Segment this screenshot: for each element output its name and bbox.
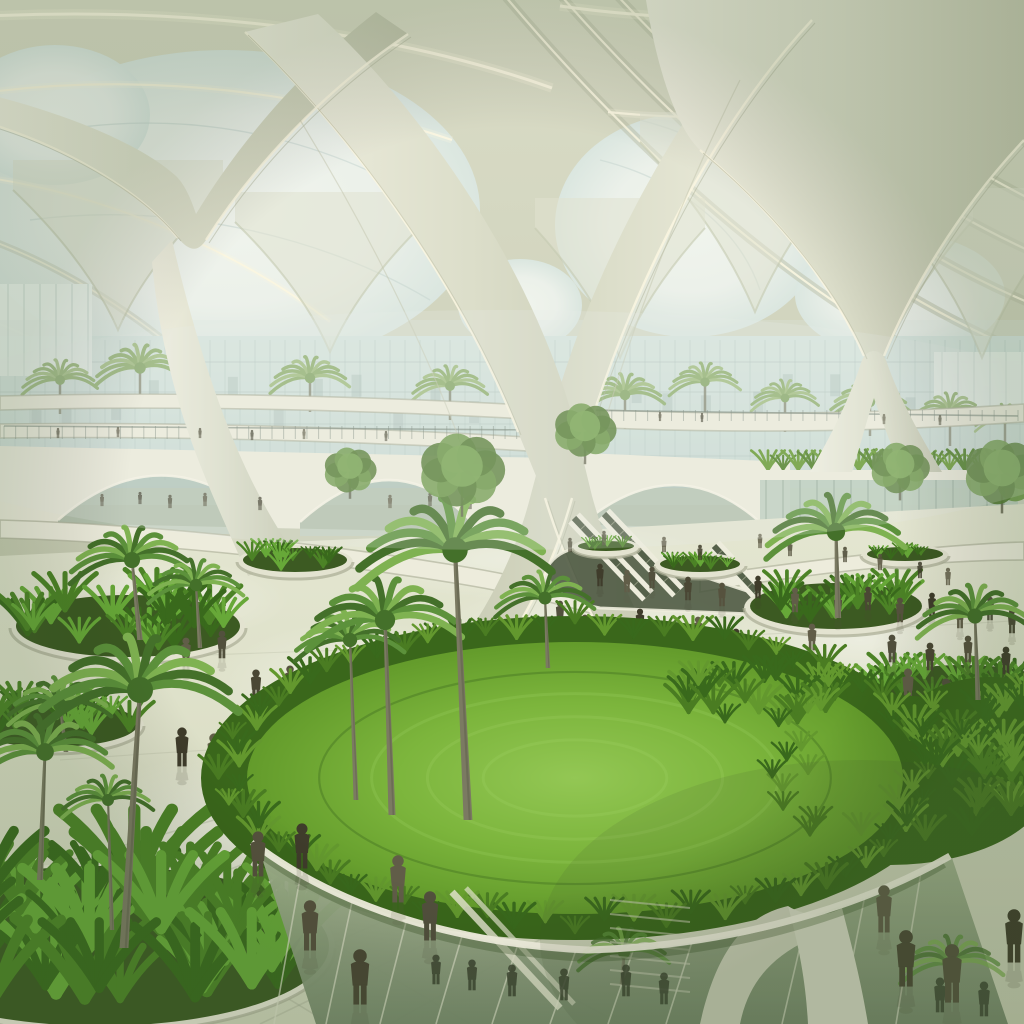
- scene-canvas: [0, 0, 1024, 1024]
- atmosphere-vignette: [0, 0, 1024, 1024]
- terminal-atrium-illustration: [0, 0, 1024, 1024]
